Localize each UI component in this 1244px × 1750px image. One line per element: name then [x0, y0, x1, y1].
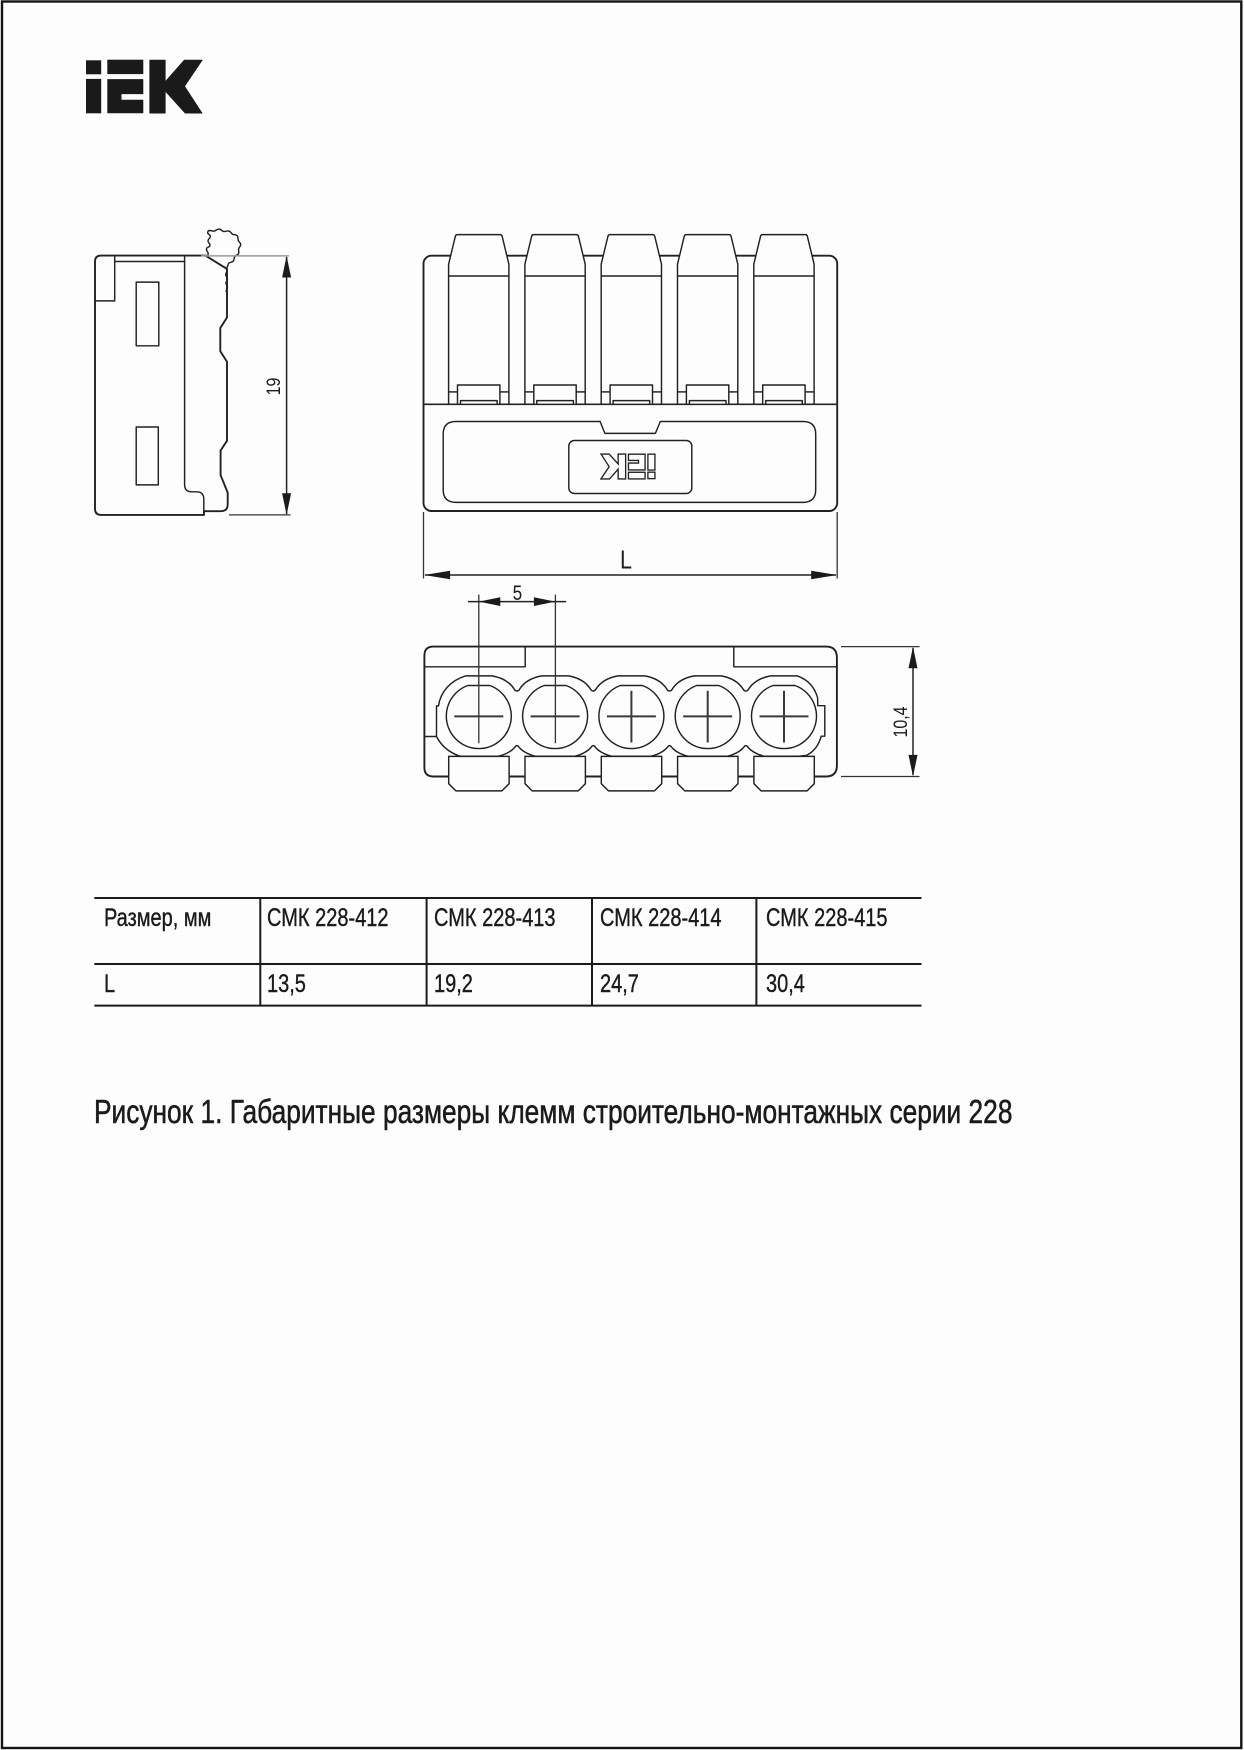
svg-text:19: 19 — [263, 378, 285, 396]
svg-text:5: 5 — [513, 583, 523, 606]
svg-text:L: L — [620, 546, 632, 575]
svg-text:10,4: 10,4 — [890, 706, 912, 737]
